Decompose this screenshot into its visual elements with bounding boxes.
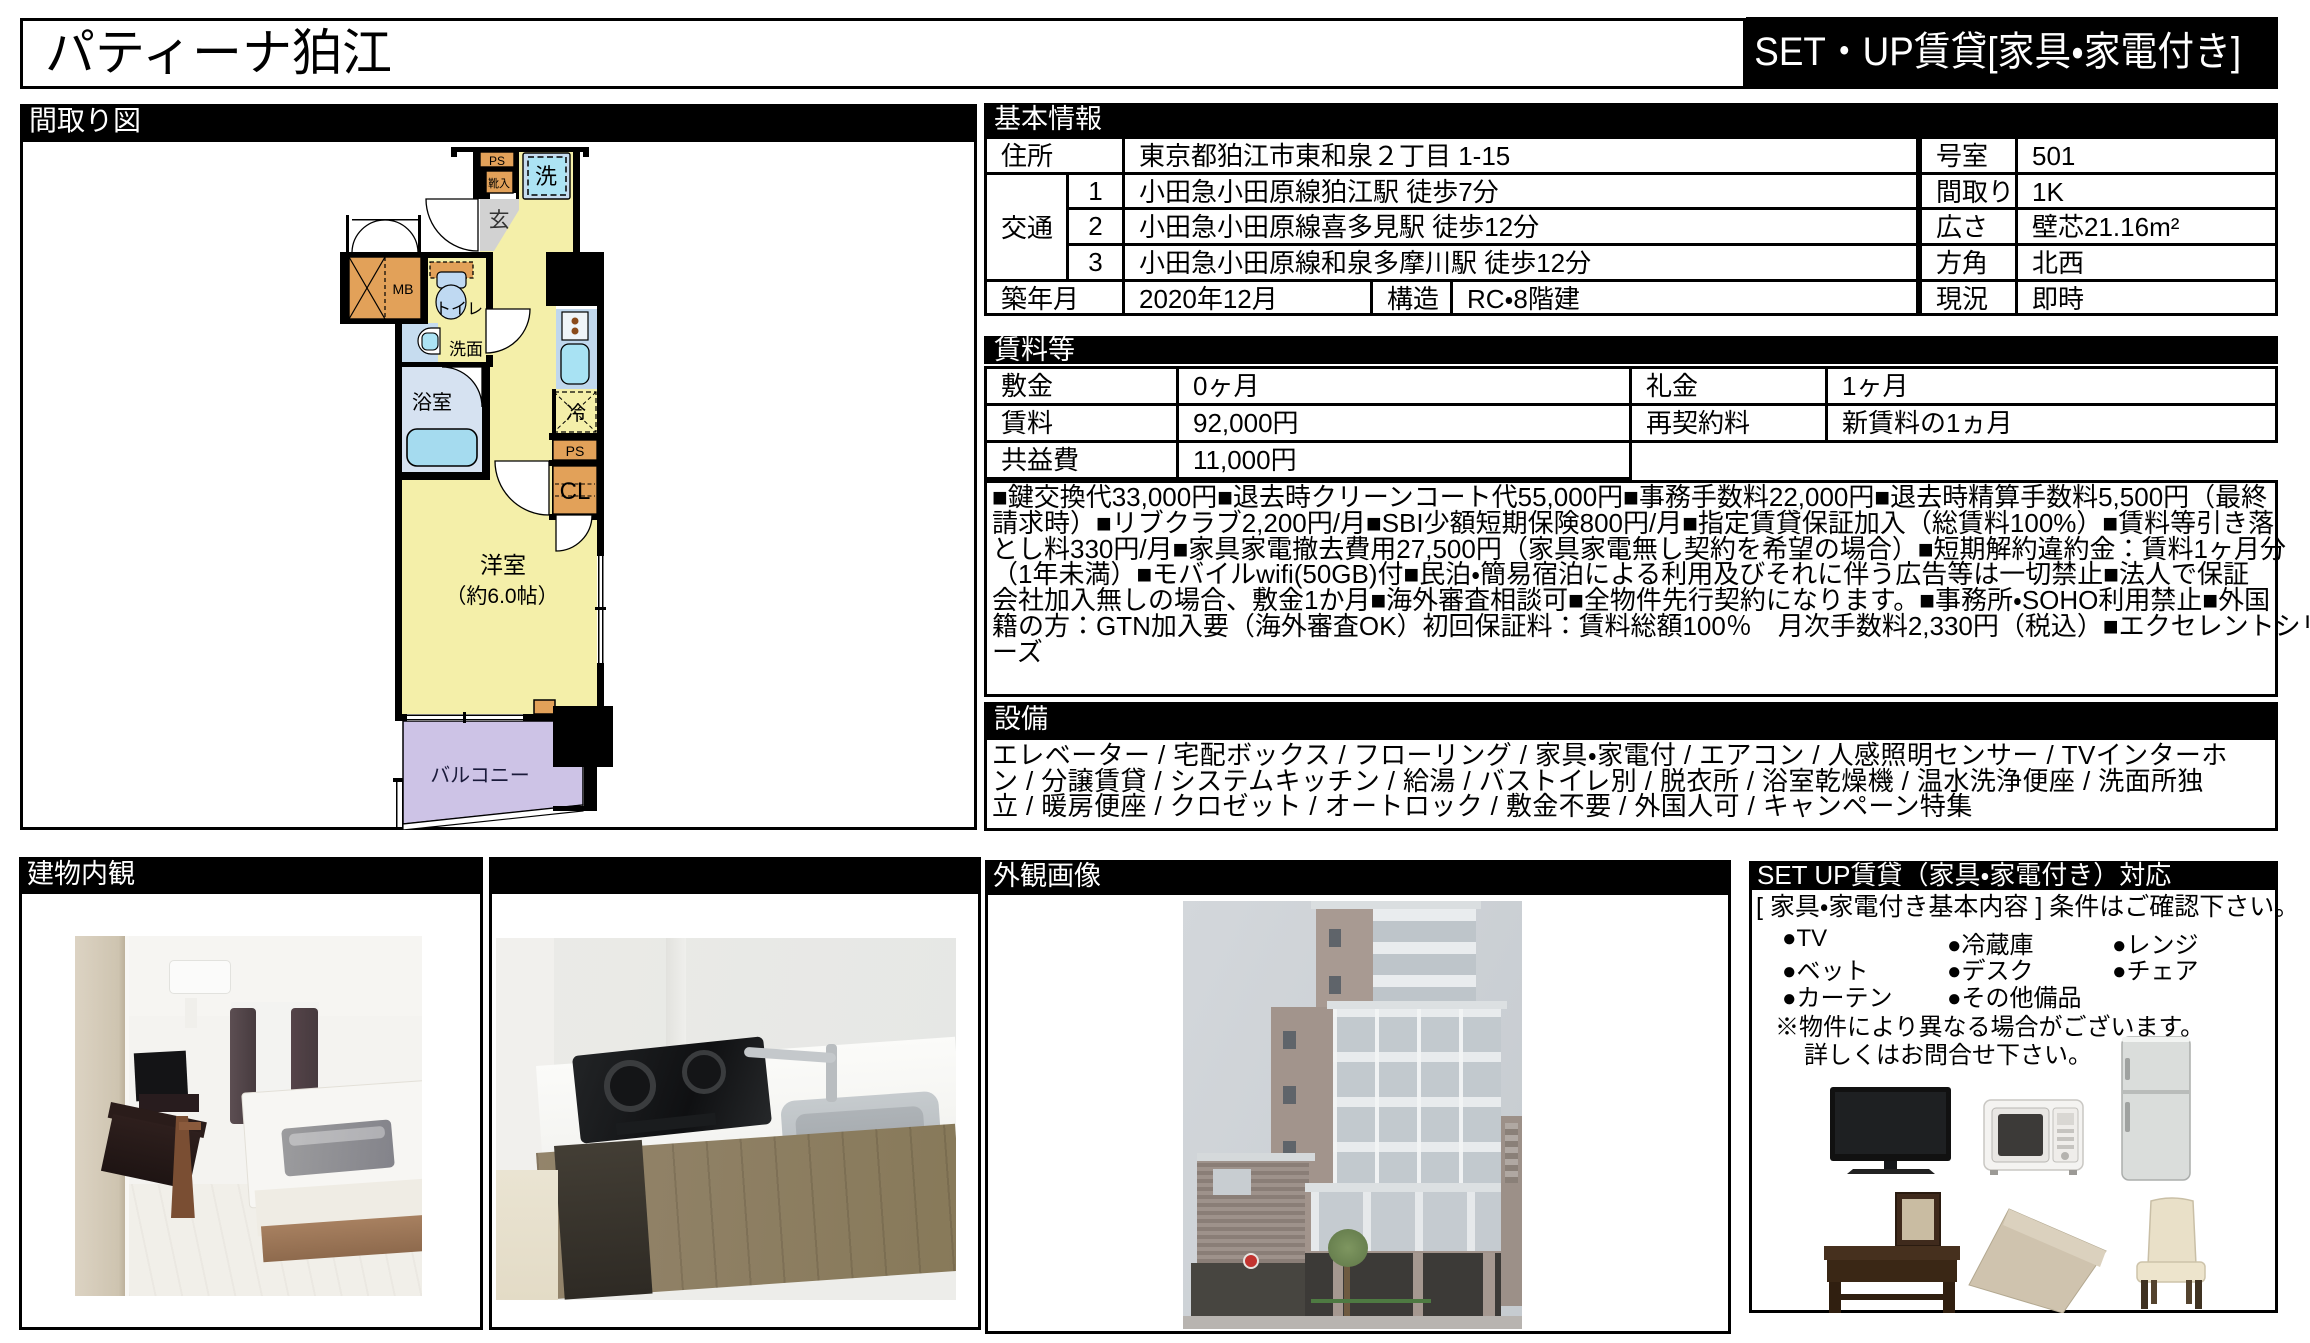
- svg-text:CL: CL: [560, 478, 591, 505]
- svg-text:洗面: 洗面: [449, 340, 483, 359]
- svg-text:洗: 洗: [535, 164, 557, 189]
- svg-text:トイレ: トイレ: [435, 301, 483, 318]
- svg-text:浴室: 浴室: [412, 391, 452, 414]
- svg-text:バルコニー: バルコニー: [430, 765, 530, 787]
- svg-text:玄: 玄: [489, 209, 510, 232]
- svg-text:PS: PS: [566, 443, 585, 459]
- svg-text:靴入: 靴入: [488, 176, 510, 190]
- svg-text:洋室: 洋室: [480, 552, 526, 578]
- svg-text:PS: PS: [489, 154, 505, 168]
- svg-text:MB: MB: [393, 281, 414, 297]
- svg-text:（約6.0帖）: （約6.0帖）: [445, 585, 558, 608]
- svg-text:冷: 冷: [566, 402, 586, 425]
